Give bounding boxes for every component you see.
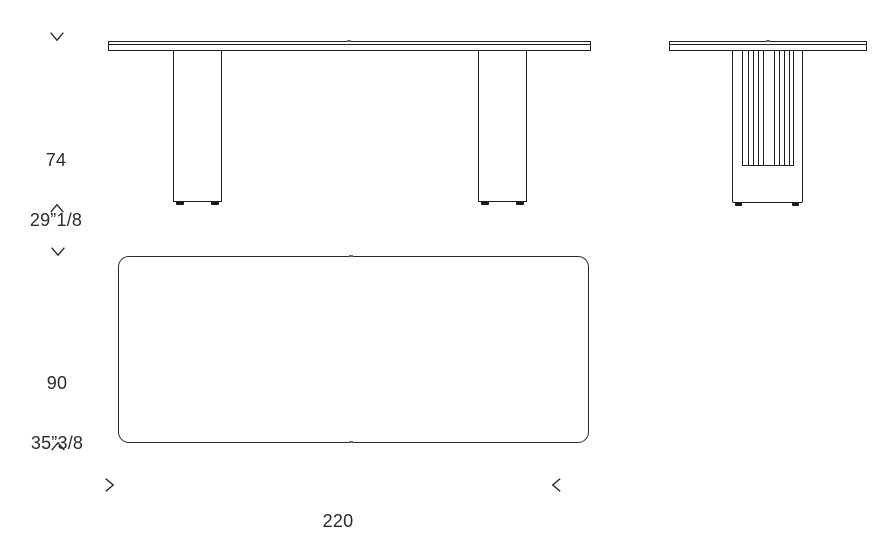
depth-cm: 90 <box>6 373 108 393</box>
tabletop-side <box>669 41 867 51</box>
table-leg-left <box>173 51 222 202</box>
slat-line <box>748 51 749 165</box>
tabletop-side-center-mark <box>766 40 770 42</box>
slat-line <box>789 51 790 165</box>
slat-line <box>784 51 785 165</box>
technical-drawing-sheet: 74 29”1/8 90 35”3/8 220 86”5/8 <box>0 0 888 540</box>
tabletop-plan-outline <box>118 256 589 443</box>
chevron-up-icon <box>51 442 65 451</box>
foot-glide <box>176 201 184 205</box>
height-inches: 29”1/8 <box>5 210 107 230</box>
slat-line <box>763 51 764 165</box>
chevron-down-icon <box>51 247 65 256</box>
slat-line <box>758 51 759 165</box>
width-dimension-label: 220 86”5/8 <box>238 471 438 540</box>
tabletop-front-center-mark <box>347 40 351 42</box>
chevron-down-icon <box>50 32 64 41</box>
foot-glide <box>792 202 799 206</box>
foot-glide <box>516 201 524 205</box>
foot-glide <box>211 201 219 205</box>
depth-dimension-label: 90 35”3/8 <box>6 333 108 493</box>
slat-panel <box>742 51 794 166</box>
table-leg-right <box>478 51 527 202</box>
tabletop-front <box>108 41 591 51</box>
foot-glide <box>481 201 489 205</box>
chevron-left-icon <box>552 478 561 492</box>
height-cm: 74 <box>5 150 107 170</box>
foot-glide <box>735 202 742 206</box>
slat-line <box>774 51 775 165</box>
plan-bottom-center-mark <box>349 441 353 443</box>
plan-top-center-mark <box>349 255 353 257</box>
chevron-right-icon <box>105 478 114 492</box>
height-dimension-label: 74 29”1/8 <box>5 110 107 270</box>
width-cm: 220 <box>238 511 438 531</box>
slat-line <box>779 51 780 165</box>
chevron-up-icon <box>50 204 64 213</box>
slat-line <box>753 51 754 165</box>
